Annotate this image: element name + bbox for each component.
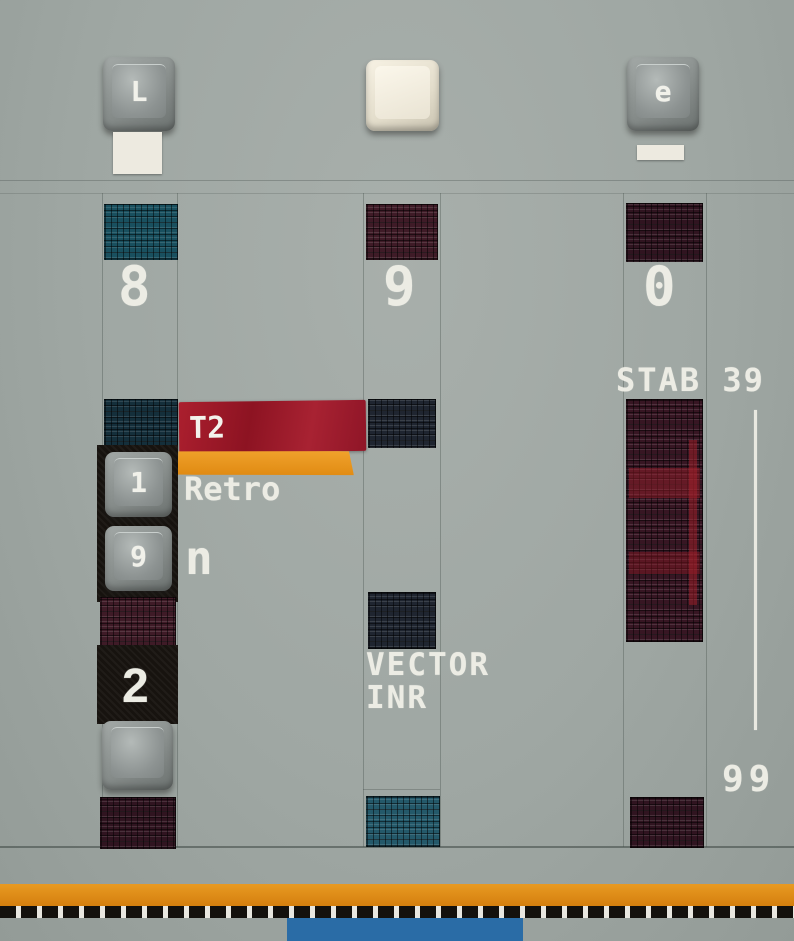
key-left-middle[interactable]: 9 — [105, 526, 172, 591]
indicator-window-texture — [630, 797, 704, 848]
indicator-window-texture — [100, 797, 176, 849]
panel-seam-line — [363, 789, 440, 790]
dashed-calibration-strip — [0, 906, 794, 918]
red-tape-text: T2 — [189, 411, 226, 446]
panel-seam-line — [0, 193, 794, 194]
indicator-window-texture — [366, 204, 438, 260]
key-left-bottom-glyph — [111, 727, 164, 778]
column-guide-line — [706, 193, 707, 847]
control-panel: L e 8 1 9 2 T2 Retro n 9 VECTOR INR 0 ST… — [0, 0, 794, 941]
white-square-sticker — [113, 132, 162, 174]
indicator-window-texture — [100, 597, 176, 649]
bottom-number-label: 99 — [722, 762, 775, 798]
key-left-bottom[interactable] — [102, 721, 173, 790]
n-label: n — [185, 535, 213, 581]
key-left-upper-glyph: 1 — [114, 458, 164, 506]
blue-bottom-block — [287, 918, 523, 941]
key-left-upper[interactable]: 1 — [105, 452, 172, 517]
indicator-window-texture — [104, 399, 178, 449]
red-indicator-streak — [689, 440, 697, 605]
key-top-middle[interactable] — [366, 60, 439, 131]
column-guide-line — [440, 193, 441, 847]
indicator-window-texture — [626, 203, 703, 262]
key-top-left-glyph: L — [112, 64, 165, 119]
key-top-right[interactable]: e — [627, 57, 699, 131]
key-top-middle-glyph — [375, 66, 429, 119]
scale-marker-line — [754, 410, 757, 730]
indicator-window-texture — [104, 204, 178, 260]
indicator-window-texture-long — [626, 399, 703, 642]
column-guide-line — [623, 193, 624, 847]
column-digit-0: 0 — [643, 260, 676, 314]
panel-seam-line — [0, 180, 794, 181]
column-guide-line — [363, 193, 364, 847]
indicator-window-texture — [368, 399, 436, 448]
stab-title: STAB 39 — [616, 364, 765, 396]
section-number-label: 2 — [122, 663, 149, 711]
key-left-middle-glyph: 9 — [114, 532, 164, 580]
retro-label: Retro — [184, 473, 280, 505]
red-tape-label: T2 — [179, 400, 367, 453]
key-top-left[interactable]: L — [103, 57, 175, 131]
orange-bottom-stripe — [0, 884, 794, 906]
column-digit-8: 8 — [118, 260, 151, 314]
vector-label-line2: INR — [366, 683, 428, 714]
vector-label-line1: VECTOR — [366, 650, 490, 681]
column-digit-9: 9 — [383, 260, 416, 314]
key-top-right-glyph: e — [636, 64, 689, 119]
indicator-window-texture — [366, 796, 440, 847]
white-strip-sticker — [637, 145, 684, 160]
indicator-window-texture — [368, 592, 436, 649]
